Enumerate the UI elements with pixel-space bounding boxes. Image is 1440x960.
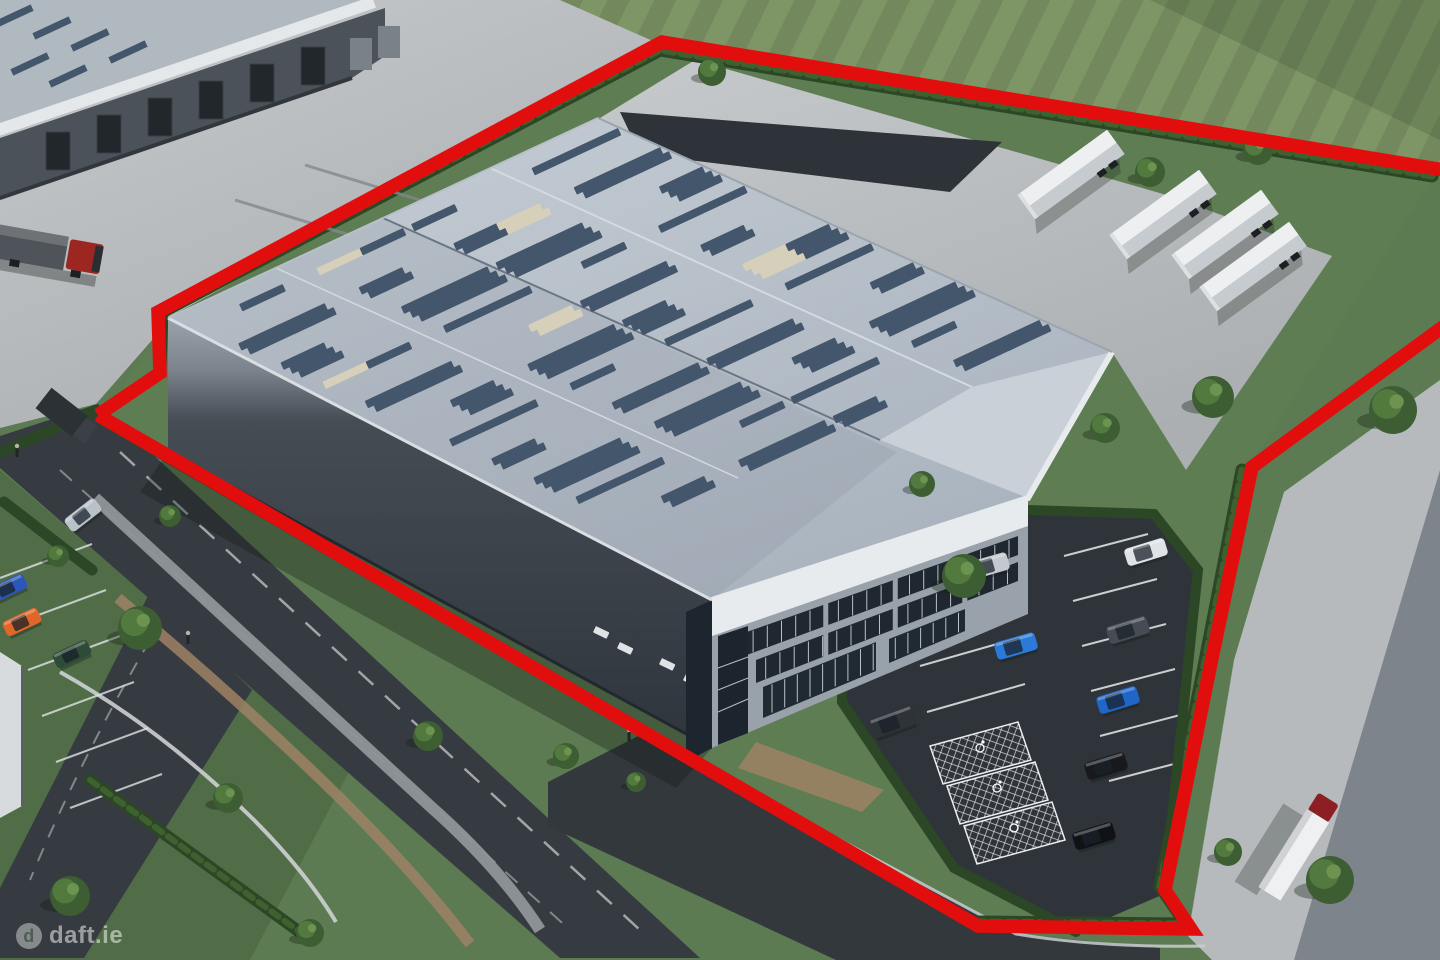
aerial-property-render: d daft.ie <box>0 0 1440 960</box>
daft-watermark: d daft.ie <box>16 922 123 950</box>
dock-door-light <box>350 38 372 70</box>
corner-glazing-se <box>718 626 748 745</box>
dock-door-light <box>378 26 400 58</box>
render-scene <box>0 0 1440 960</box>
corner-glazing-left <box>686 600 712 762</box>
small-building-bottom-left <box>0 652 22 818</box>
daft-logo-icon: d <box>16 923 42 949</box>
watermark-text: daft.ie <box>49 922 123 950</box>
